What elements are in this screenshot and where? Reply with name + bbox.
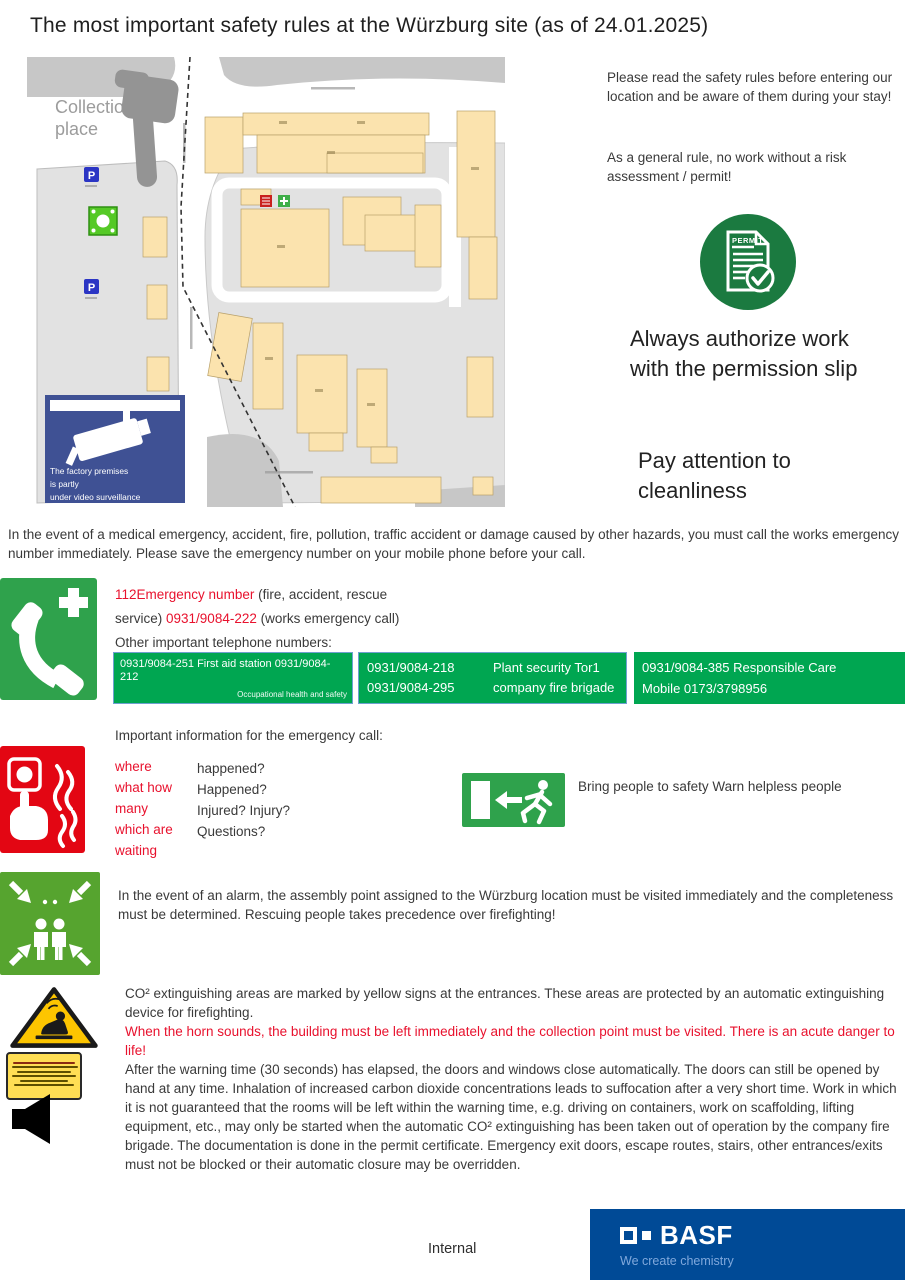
emergency-numbers: 112Emergency number (fire, accident, res… xyxy=(115,583,427,655)
surveillance-sign: The factory premises is partly under vid… xyxy=(45,395,185,503)
security-labels: Plant security Tor1 company fire brigade xyxy=(493,658,622,698)
authorize-note: Always authorize work with the permissio… xyxy=(630,324,858,384)
basf-tagline: We create chemistry xyxy=(620,1254,905,1268)
question-list-right: happened? Happened? Injured? Injury? Que… xyxy=(197,758,357,842)
first-aid-cell: 0931/9084-251 First aid station 0931/908… xyxy=(113,652,353,704)
co2-p2: After the warning time (30 seconds) has … xyxy=(125,1060,899,1174)
basf-square-solid-icon xyxy=(642,1231,651,1240)
basf-square-outline-icon xyxy=(620,1227,637,1244)
security-cell: 0931/9084-218 0931/9084-295 Plant securi… xyxy=(358,652,627,704)
safety-rules-page: The most important safety rules at the W… xyxy=(0,0,905,1280)
fire-marker-icon xyxy=(260,195,272,207)
assembly-point-map-icon xyxy=(89,207,117,235)
emergency-number-112: 112Emergency number xyxy=(115,587,254,602)
co2-warning-icon xyxy=(8,984,100,1052)
svg-text:P: P xyxy=(88,282,95,294)
speaker-icon xyxy=(12,1092,50,1146)
call-info-heading: Important information for the emergency … xyxy=(115,726,515,745)
emergency-intro: In the event of a medical emergency, acc… xyxy=(8,525,900,563)
care-cell: 0931/9084-385 Responsible Care Mobile 01… xyxy=(634,652,905,704)
site-map: P P Collection place xyxy=(27,57,505,507)
collection-place-label: place xyxy=(55,119,98,139)
phone-table: 0931/9084-251 First aid station 0931/908… xyxy=(0,652,905,704)
co2-warning-text: When the horn sounds, the building must … xyxy=(125,1022,905,1060)
works-emergency-number: 0931/9084-222 xyxy=(166,611,257,626)
cleanliness-note: Pay attention to cleanliness xyxy=(638,446,858,506)
exit-sign-icon xyxy=(462,773,565,827)
fire-alarm-icon xyxy=(0,746,85,853)
page-title: The most important safety rules at the W… xyxy=(30,14,850,38)
svg-text:under video surveillance: under video surveillance xyxy=(50,492,141,502)
question-list-left: where what how many which are waiting xyxy=(115,756,195,861)
assembly-point-icon xyxy=(0,872,100,975)
internal-label: Internal xyxy=(428,1241,476,1257)
intro-general-rule: As a general rule, no work without a ris… xyxy=(607,148,905,186)
assembly-text: In the event of an alarm, the assembly p… xyxy=(118,886,900,924)
basf-wordmark: BASF xyxy=(660,1222,733,1248)
basf-logo: BASF We create chemistry xyxy=(590,1209,905,1280)
door-icon xyxy=(471,781,490,819)
svg-text:P: P xyxy=(88,170,95,182)
svg-text:PERMIT: PERMIT xyxy=(732,236,763,245)
rescue-note: Bring people to safety Warn helpless peo… xyxy=(578,777,858,796)
intro-read-rules: Please read the safety rules before ente… xyxy=(607,68,897,106)
first-aid-marker-icon xyxy=(278,195,290,207)
security-numbers: 0931/9084-218 0931/9084-295 xyxy=(367,658,493,698)
permit-icon: PERMIT xyxy=(698,212,798,312)
co2-p1: CO² extinguishing areas are marked by ye… xyxy=(125,984,899,1022)
svg-text:The factory premises: The factory premises xyxy=(50,466,128,476)
svg-text:is partly: is partly xyxy=(50,479,80,489)
